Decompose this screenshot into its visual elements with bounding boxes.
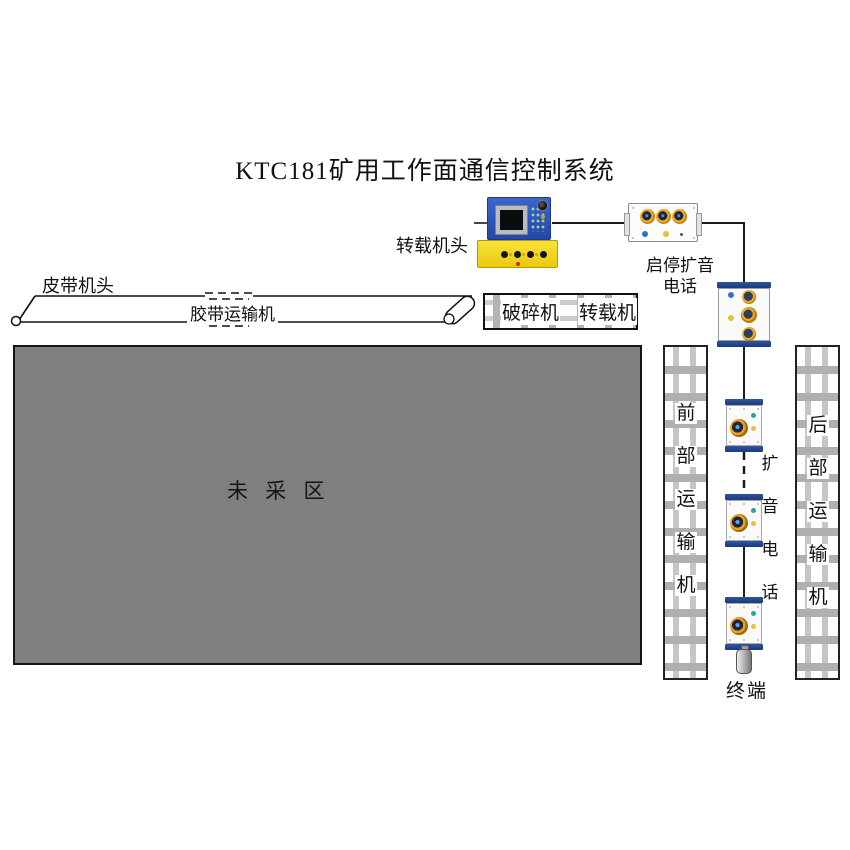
indicator-yellow <box>751 624 756 629</box>
crusher-label: 破碎机 <box>501 298 560 325</box>
button-icon <box>540 251 547 258</box>
speaker-icon <box>730 617 748 635</box>
speaker-icon <box>640 209 655 224</box>
indicator-red <box>516 262 520 266</box>
speaker-icon <box>656 209 671 224</box>
loudspeaker-phone-2 <box>726 494 762 547</box>
diagram-canvas: KTC181矿用工作面通信控制系统 皮带机头 胶带运输机 <box>0 0 850 850</box>
start-stop-phone-label: 启停扩音电话 <box>645 255 715 297</box>
loudspeaker-phone-3 <box>726 597 762 650</box>
relay-phone-device <box>718 282 770 347</box>
equipment-row: 破碎机 转载机 <box>483 293 638 330</box>
transfer-machine-label: 转载机 <box>578 298 637 325</box>
knob-icon <box>537 200 548 211</box>
indicator-blue <box>728 292 734 298</box>
speaker-icon <box>742 290 756 304</box>
terminal-device <box>736 649 752 674</box>
indicator-yellow <box>751 521 756 526</box>
front-conveyor: 前部运输机 <box>663 345 708 680</box>
indicator-yellow <box>728 315 734 321</box>
front-conveyor-label: 前部运输机 <box>675 403 697 596</box>
button-icon <box>501 251 508 258</box>
unmined-area-label: 未 采 区 <box>227 475 331 505</box>
rear-conveyor-label: 后部运输机 <box>807 415 829 608</box>
rear-conveyor: 后部运输机 <box>795 345 840 680</box>
loudspeaker-phone-1 <box>726 399 762 452</box>
belt-head-label: 皮带机头 <box>42 272 114 298</box>
indicator-yellow <box>663 231 669 237</box>
speaker-icon <box>742 327 756 341</box>
indicator-blue <box>642 231 648 237</box>
speaker-icon <box>672 209 687 224</box>
speaker-icon <box>741 307 757 323</box>
indicator-yellow <box>751 426 756 431</box>
unmined-area: 未 采 区 <box>13 345 642 665</box>
start-stop-phone-device <box>628 203 698 242</box>
indicator-teal <box>751 413 756 418</box>
indicator-teal <box>751 508 756 513</box>
diagram-title: KTC181矿用工作面通信控制系统 <box>0 151 850 187</box>
loudspeaker-phones-label: 扩音电话 <box>761 455 779 601</box>
control-station-screen <box>495 205 528 235</box>
belt-conveyor-label: 胶带运输机 <box>187 300 278 325</box>
control-station-base <box>477 240 558 268</box>
belt-roller-left <box>12 317 21 326</box>
button-icon <box>527 251 534 258</box>
terminal-label: 终端 <box>726 676 768 703</box>
button-icon <box>514 251 521 258</box>
control-station-device <box>477 197 558 268</box>
control-station-panel <box>487 197 551 240</box>
speaker-icon <box>730 419 748 437</box>
indicator-teal <box>751 611 756 616</box>
transfer-head-label: 转载机头 <box>396 232 468 258</box>
speaker-icon <box>730 514 748 532</box>
